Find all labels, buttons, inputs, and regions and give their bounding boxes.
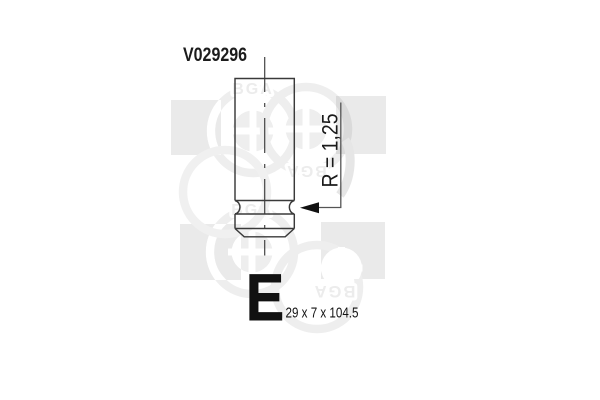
svg-text:E: E <box>246 261 284 334</box>
svg-text:BGA: BGA <box>313 282 356 300</box>
svg-text:29 x 7 x 104.5: 29 x 7 x 104.5 <box>286 305 359 322</box>
svg-text:R = 1,25: R = 1,25 <box>318 114 343 188</box>
svg-text:V029296: V029296 <box>183 44 247 66</box>
